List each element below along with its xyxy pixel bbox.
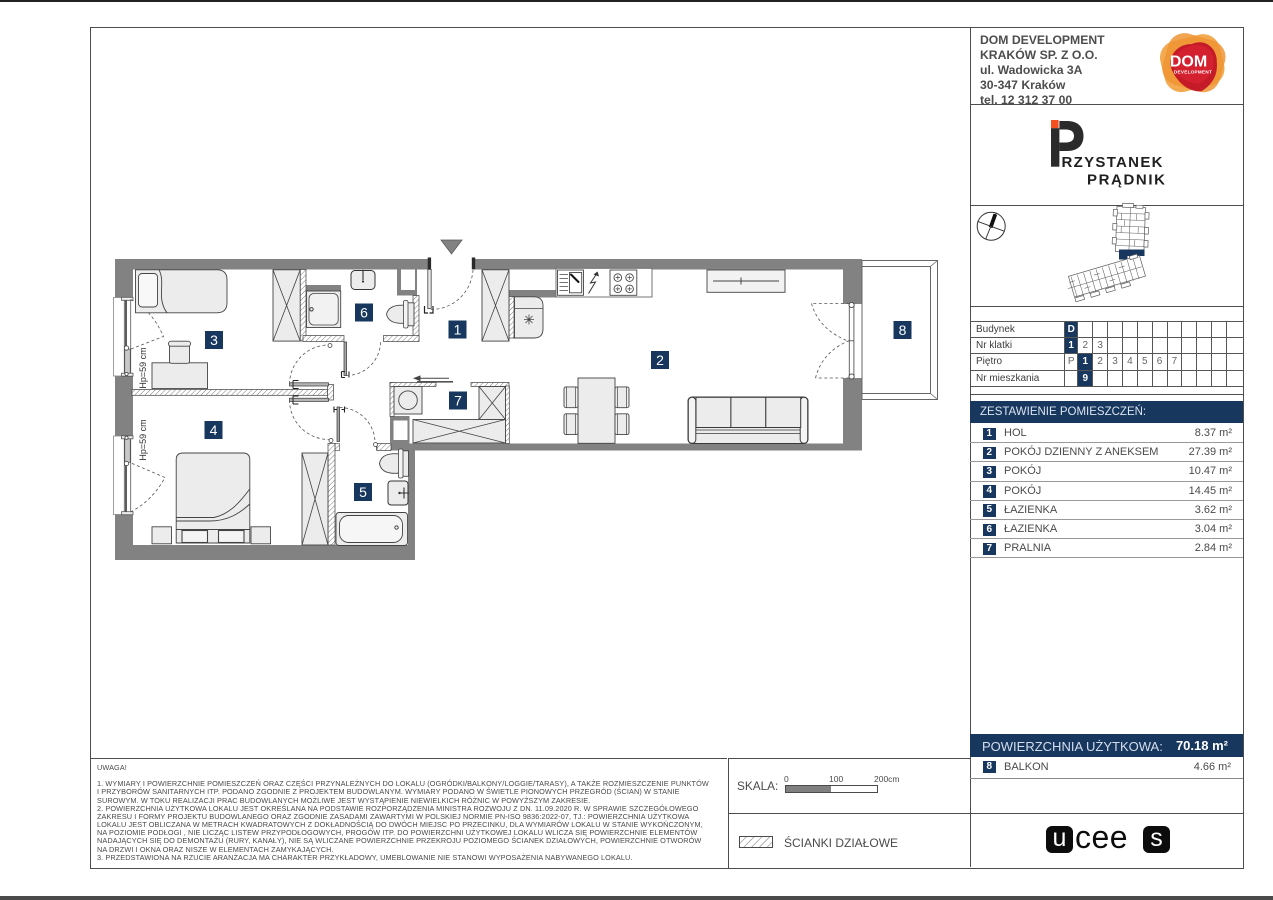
svg-text:4: 4 (210, 422, 218, 438)
svg-text:8: 8 (899, 322, 907, 338)
svg-text:1: 1 (454, 321, 462, 337)
svg-text:6: 6 (360, 304, 368, 320)
svg-text:Hp=59 cm: Hp=59 cm (138, 419, 148, 460)
svg-text:7: 7 (454, 392, 462, 408)
svg-text:3: 3 (210, 332, 218, 348)
svg-text:2: 2 (656, 352, 664, 368)
svg-text:Hp=59 cm: Hp=59 cm (138, 347, 148, 388)
svg-text:5: 5 (359, 484, 367, 500)
